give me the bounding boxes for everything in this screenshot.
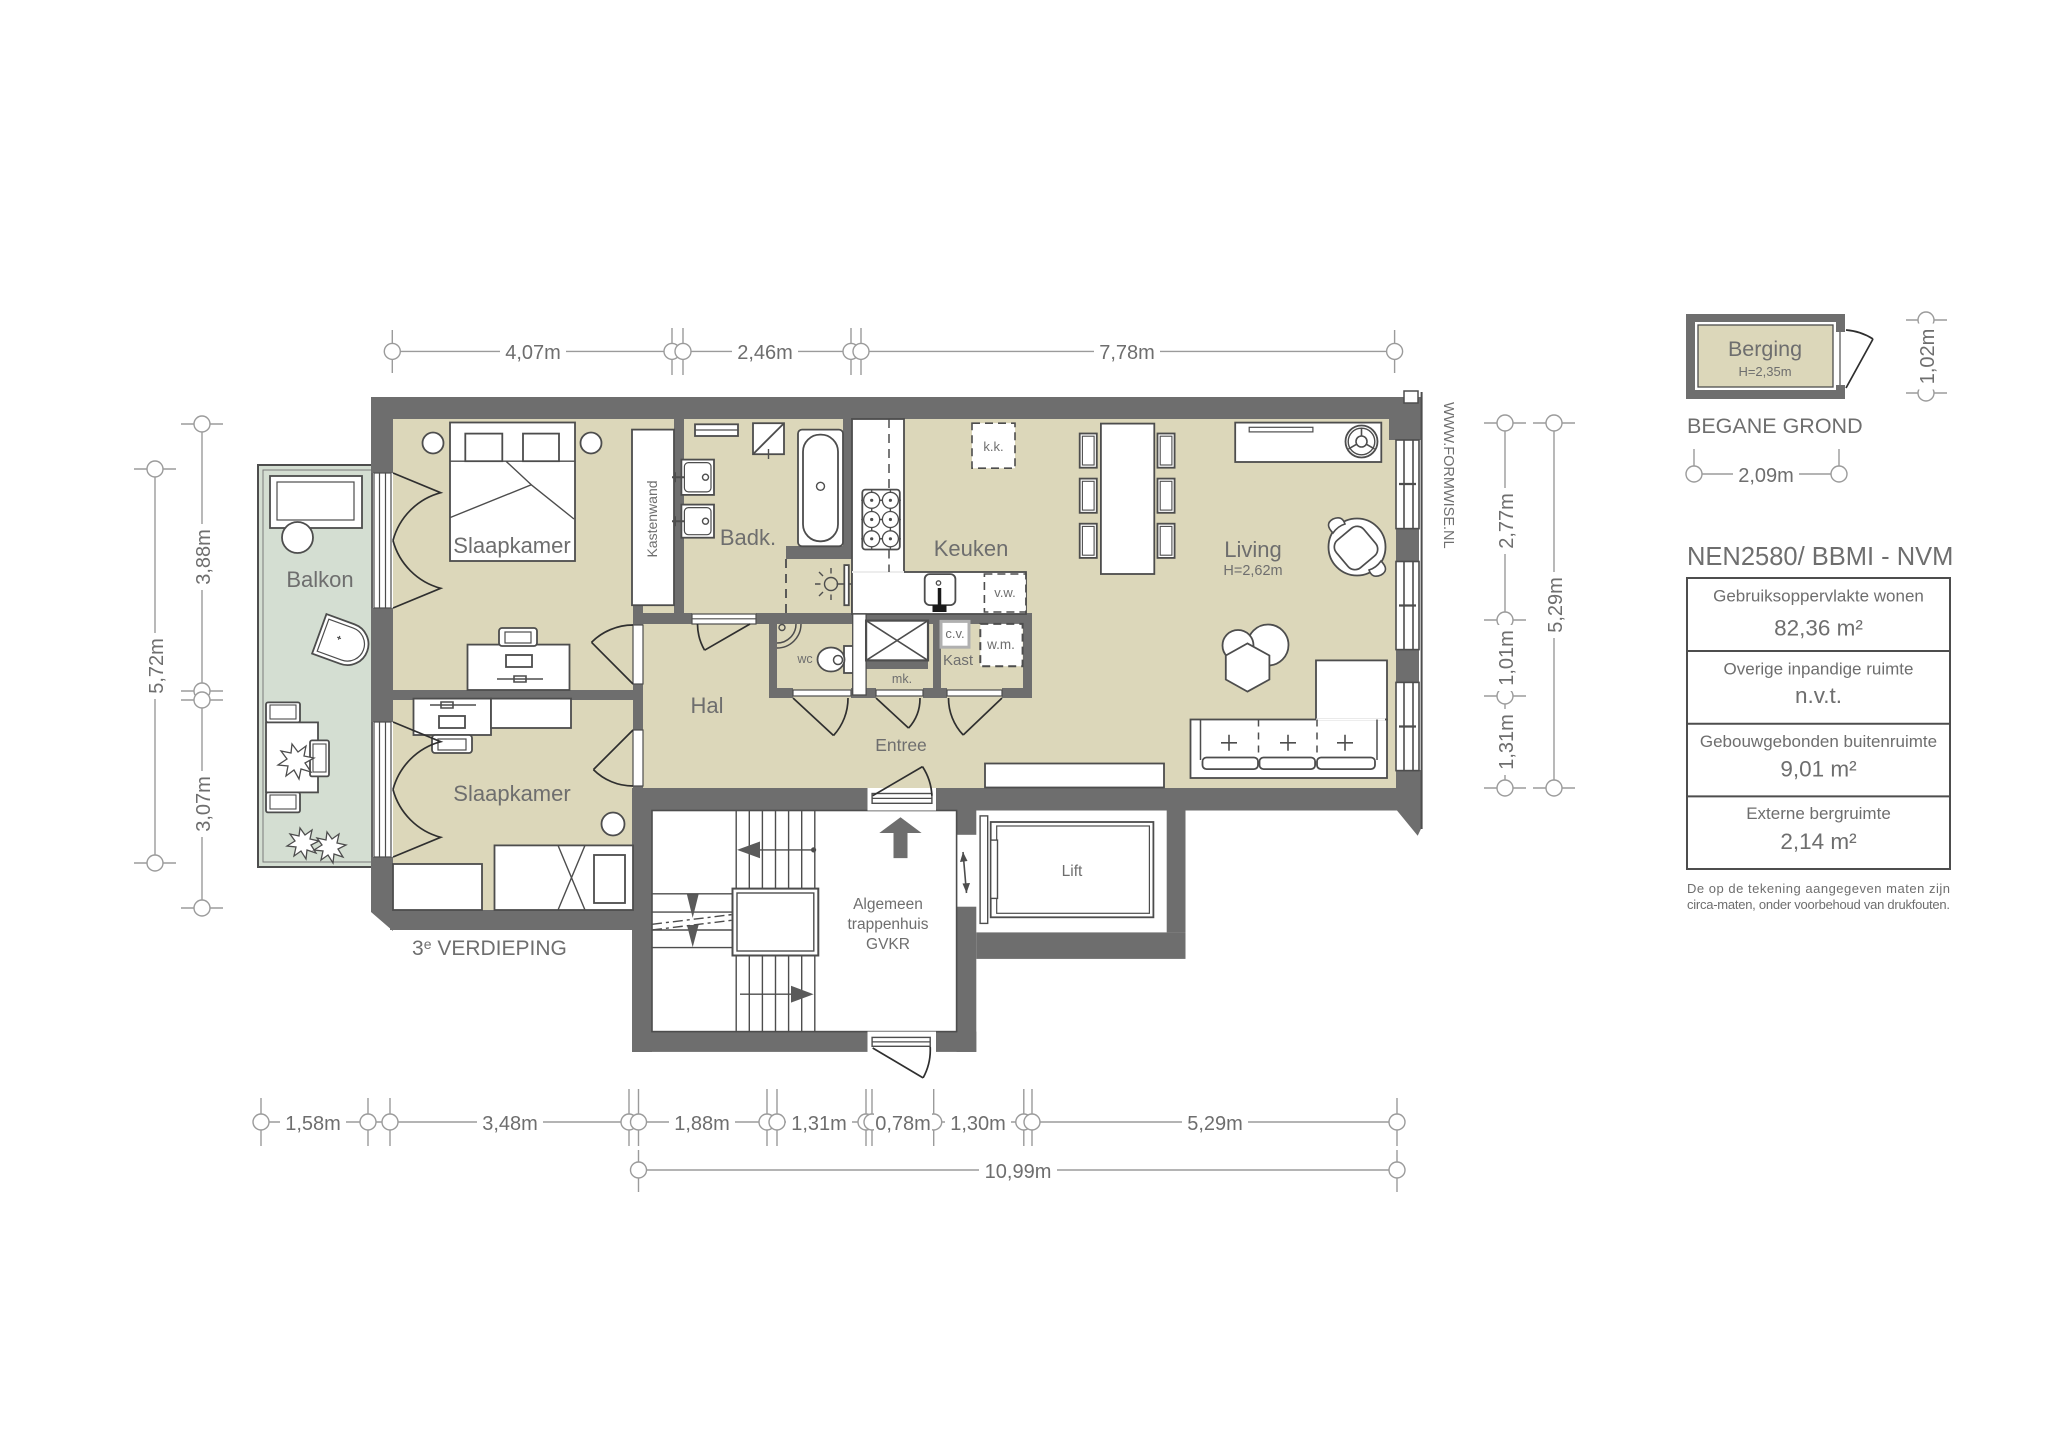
svg-text:Kastenwand: Kastenwand (644, 480, 660, 557)
svg-text:1,02m: 1,02m (1917, 329, 1939, 385)
svg-text:2,09m: 2,09m (1738, 465, 1794, 487)
svg-text:Lift: Lift (1062, 863, 1083, 880)
svg-text:5,72m: 5,72m (146, 638, 168, 694)
svg-text:7,78m: 7,78m (1099, 342, 1155, 364)
svg-text:3,88m: 3,88m (193, 529, 215, 585)
svg-text:BEGANE GROND: BEGANE GROND (1687, 414, 1863, 438)
svg-text:De op de tekening aangegeven m: De op de tekening aangegeven maten zijn (1687, 881, 1950, 896)
svg-text:1,31m: 1,31m (1496, 714, 1518, 770)
svg-text:Overige inpandige ruimte: Overige inpandige ruimte (1724, 660, 1914, 679)
svg-text:5,29m: 5,29m (1545, 577, 1567, 633)
svg-text:4,07m: 4,07m (505, 342, 561, 364)
svg-text:c.v.: c.v. (945, 626, 964, 641)
svg-text:Externe bergruimte: Externe bergruimte (1746, 804, 1891, 823)
svg-text:v.w.: v.w. (994, 585, 1015, 600)
svg-text:Algemeen: Algemeen (853, 896, 923, 913)
svg-text:3,48m: 3,48m (482, 1113, 538, 1135)
svg-text:3e VERDIEPING: 3e VERDIEPING (412, 936, 567, 960)
svg-text:k.k.: k.k. (983, 439, 1003, 454)
svg-text:Entree: Entree (875, 735, 927, 755)
svg-text:Gebouwgebonden buitenruimte: Gebouwgebonden buitenruimte (1700, 732, 1937, 751)
svg-text:2,46m: 2,46m (737, 342, 793, 364)
svg-text:H=2,35m: H=2,35m (1738, 364, 1791, 379)
svg-text:wc: wc (796, 652, 812, 666)
svg-text:w.m.: w.m. (986, 637, 1015, 652)
svg-text:0,78m: 0,78m (875, 1113, 931, 1135)
svg-text:circa-maten, onder voorbehoud: circa-maten, onder voorbehoud van drukfo… (1687, 897, 1950, 912)
svg-text:Keuken: Keuken (934, 536, 1009, 561)
svg-text:1,01m: 1,01m (1496, 630, 1518, 686)
svg-text:2,77m: 2,77m (1496, 493, 1518, 549)
svg-text:Balkon: Balkon (286, 567, 353, 592)
svg-text:NEN2580/ BBMI - NVM: NEN2580/ BBMI - NVM (1687, 543, 1953, 571)
svg-text:1,31m: 1,31m (791, 1113, 847, 1135)
svg-text:mk.: mk. (892, 672, 912, 686)
svg-text:GVKR: GVKR (866, 936, 910, 953)
svg-text:3,07m: 3,07m (193, 776, 215, 832)
svg-text:Berging: Berging (1728, 337, 1802, 361)
svg-text:H=2,62m: H=2,62m (1223, 563, 1282, 579)
svg-text:82,36 m²: 82,36 m² (1774, 616, 1863, 641)
svg-text:2,14 m²: 2,14 m² (1780, 829, 1857, 854)
svg-text:Kast: Kast (943, 652, 974, 669)
svg-text:Living: Living (1224, 537, 1281, 562)
svg-text:Slaapkamer: Slaapkamer (453, 781, 570, 806)
svg-text:Badk.: Badk. (720, 525, 776, 550)
svg-text:1,58m: 1,58m (285, 1113, 341, 1135)
svg-text:n.v.t.: n.v.t. (1795, 683, 1842, 708)
svg-text:1,88m: 1,88m (674, 1113, 730, 1135)
svg-text:9,01 m²: 9,01 m² (1780, 757, 1857, 782)
svg-text:5,29m: 5,29m (1187, 1113, 1243, 1135)
svg-text:WWW.FORMWISE.NL: WWW.FORMWISE.NL (1440, 402, 1456, 549)
svg-text:trappenhuis: trappenhuis (847, 916, 928, 933)
svg-text:Hal: Hal (690, 693, 723, 718)
svg-text:Slaapkamer: Slaapkamer (453, 533, 570, 558)
svg-text:Gebruiksoppervlakte wonen: Gebruiksoppervlakte wonen (1713, 587, 1924, 606)
svg-text:10,99m: 10,99m (985, 1161, 1052, 1183)
svg-text:1,30m: 1,30m (950, 1113, 1006, 1135)
